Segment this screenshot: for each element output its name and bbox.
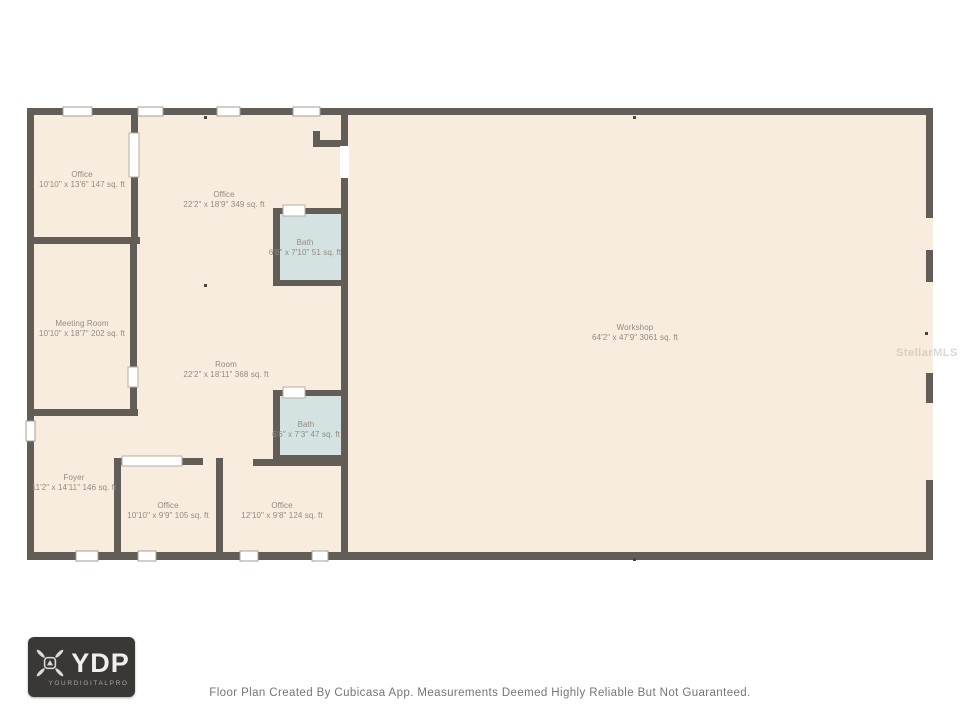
floorplan-graphic [0, 0, 960, 720]
drone-icon [33, 646, 67, 680]
disclaimer-text: Floor Plan Created By Cubicasa App. Meas… [0, 687, 960, 699]
stellar-mls-watermark: StellarMLS [896, 347, 958, 359]
logo-row: YDP [33, 646, 130, 680]
logo-abbr: YDP [71, 650, 130, 676]
